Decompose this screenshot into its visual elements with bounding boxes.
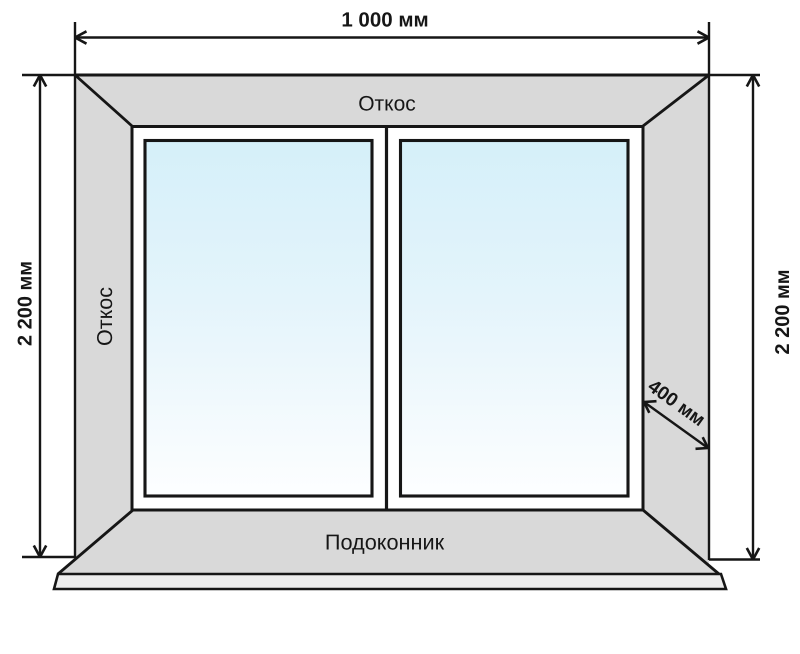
svg-text:2 200 мм: 2 200 мм	[772, 269, 794, 354]
svg-text:1 000 мм: 1 000 мм	[341, 9, 428, 32]
svg-text:Откос: Откос	[358, 93, 416, 116]
svg-text:2 200 мм: 2 200 мм	[15, 261, 37, 346]
svg-text:Откос: Откос	[93, 287, 117, 346]
svg-text:Подоконник: Подоконник	[325, 530, 445, 555]
